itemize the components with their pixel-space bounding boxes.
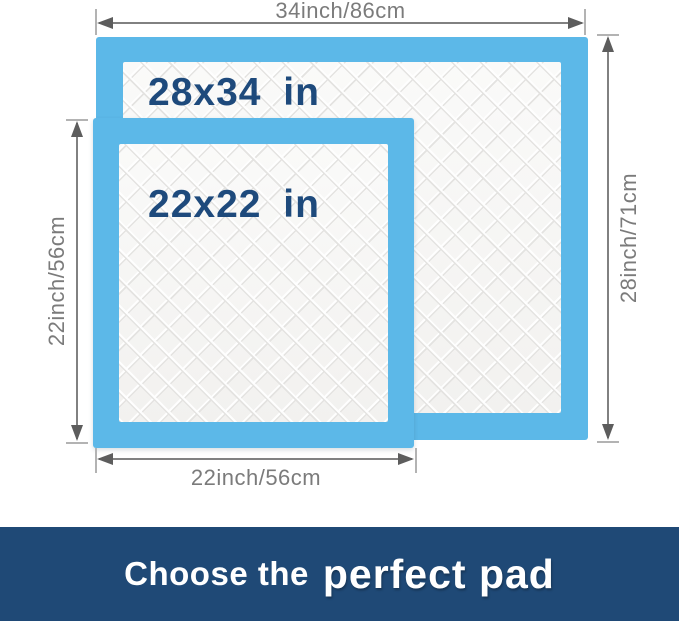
tick-mark	[66, 442, 88, 444]
tick-mark	[584, 9, 586, 35]
arrow-left-icon	[97, 17, 113, 29]
arrow-left-icon	[97, 453, 113, 465]
dimension-left-arrow	[70, 121, 84, 441]
pad-large-size-label: 28x34 in	[148, 71, 320, 115]
dimension-line	[76, 123, 78, 439]
banner: Choose the perfect pad	[0, 527, 679, 621]
arrow-right-icon	[568, 17, 584, 29]
pad-size-infographic: 28x34 in 22x22 in 34inch/86cm 28inch/71c…	[0, 0, 679, 621]
pad-small-size-label: 22x22 in	[148, 183, 320, 227]
dimension-line	[607, 38, 609, 438]
dimension-bottom-arrow	[97, 452, 414, 466]
dimension-bottom-label: 22inch/56cm	[96, 466, 416, 490]
pad-small	[93, 118, 414, 448]
dimension-line	[99, 22, 582, 24]
arrow-down-icon	[71, 425, 83, 441]
dimension-left-label: 22inch/56cm	[45, 181, 69, 381]
dimension-line	[99, 458, 412, 460]
dimension-right-arrow	[601, 36, 615, 440]
arrow-up-icon	[602, 36, 614, 52]
dimension-top-arrow	[97, 16, 584, 30]
tick-mark	[597, 441, 619, 443]
arrow-down-icon	[602, 424, 614, 440]
banner-text-bold: perfect pad	[323, 551, 555, 598]
arrow-up-icon	[71, 121, 83, 137]
arrow-right-icon	[398, 453, 414, 465]
banner-text-regular: Choose the	[124, 555, 309, 593]
dimension-right-label: 28inch/71cm	[617, 138, 641, 338]
